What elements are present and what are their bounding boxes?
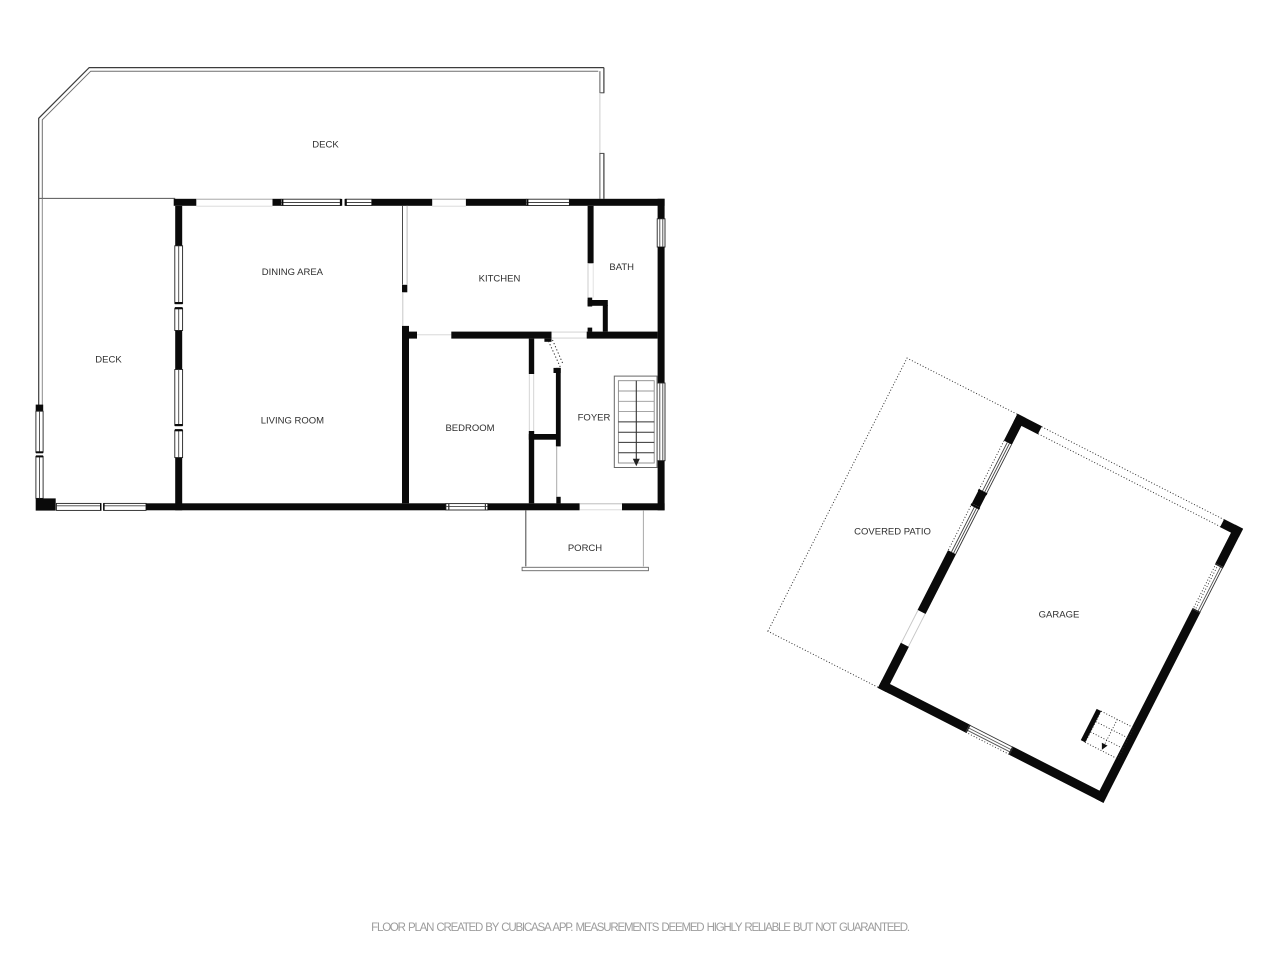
svg-text:DECK: DECK bbox=[95, 355, 122, 366]
svg-text:FOYER: FOYER bbox=[578, 412, 611, 423]
svg-text:PORCH: PORCH bbox=[568, 543, 602, 554]
svg-text:BEDROOM: BEDROOM bbox=[445, 423, 494, 434]
svg-text:GARAGE: GARAGE bbox=[1039, 610, 1080, 621]
svg-text:BATH: BATH bbox=[609, 262, 634, 273]
svg-text:KITCHEN: KITCHEN bbox=[479, 274, 521, 285]
svg-text:DINING AREA: DINING AREA bbox=[262, 267, 324, 278]
svg-text:LIVING ROOM: LIVING ROOM bbox=[261, 416, 324, 427]
svg-text:COVERED PATIO: COVERED PATIO bbox=[854, 527, 931, 538]
svg-text:DECK: DECK bbox=[312, 140, 339, 151]
svg-text:FLOOR PLAN CREATED BY CUBICASA: FLOOR PLAN CREATED BY CUBICASA APP. MEAS… bbox=[371, 922, 910, 934]
